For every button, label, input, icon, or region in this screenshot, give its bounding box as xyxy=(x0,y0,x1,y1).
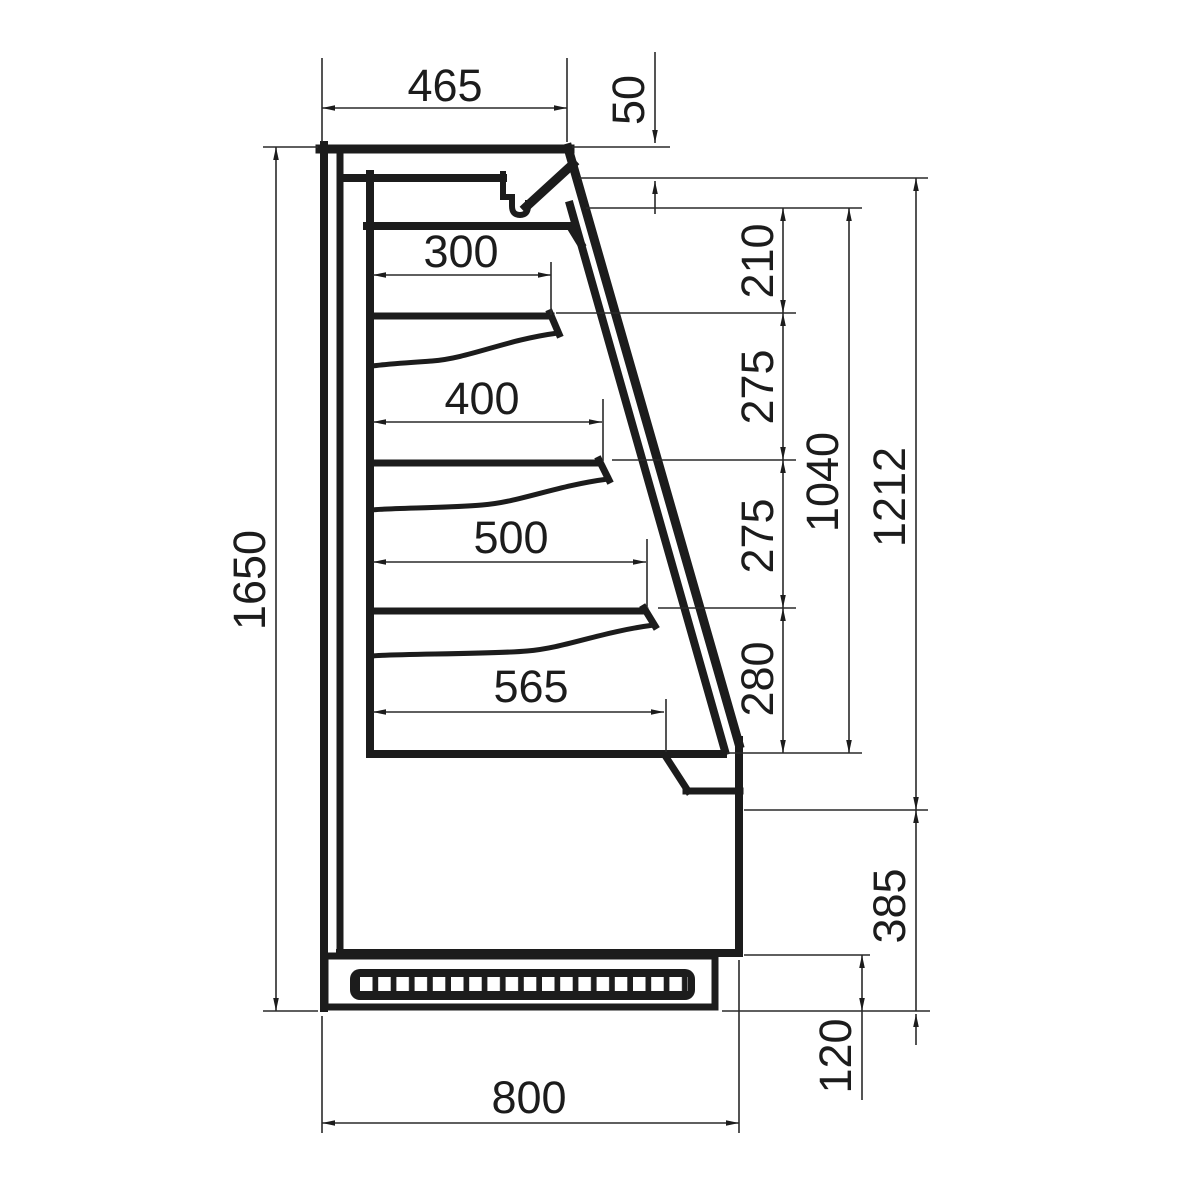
dim-label-overall-height: 1650 xyxy=(224,530,275,630)
dim-label-plinth-height: 120 xyxy=(810,1018,861,1093)
dim-label-spacing-1: 210 xyxy=(732,223,783,298)
dim-label-spacing-3: 275 xyxy=(732,498,783,573)
shelf-3 xyxy=(370,608,655,656)
air-duct-lip xyxy=(526,164,573,207)
technical-drawing-page: 465 50 300 400 500 565 210 275 275 280 1… xyxy=(0,0,1200,1200)
dim-label-spacing-4: 280 xyxy=(732,641,783,716)
dim-label-shelf-2-depth: 400 xyxy=(444,373,519,424)
dim-label-front-opening-height: 1212 xyxy=(864,447,915,547)
glass-front-outer-slant xyxy=(568,148,739,744)
base-deck xyxy=(370,754,740,791)
shelf-1 xyxy=(370,313,559,366)
dim-label-overall-depth: 800 xyxy=(491,1072,566,1123)
ventilation-grille xyxy=(350,969,695,1000)
dim-label-base-section-height: 385 xyxy=(864,868,915,943)
dim-label-spacing-2: 275 xyxy=(732,349,783,424)
glass-front-inner-slant xyxy=(570,205,725,751)
cabinet-section-drawing: 465 50 300 400 500 565 210 275 275 280 1… xyxy=(0,0,1200,1200)
dim-label-base-deck-depth: 565 xyxy=(493,661,568,712)
dim-label-shelf-1-depth: 300 xyxy=(423,226,498,277)
dim-label-shelf-3-depth: 500 xyxy=(473,512,548,563)
dim-label-top-depth: 465 xyxy=(407,60,482,111)
shelf-2 xyxy=(370,460,609,510)
dim-label-interior-opening-height: 1040 xyxy=(797,432,848,532)
dim-label-canopy-front-height: 50 xyxy=(603,75,654,125)
